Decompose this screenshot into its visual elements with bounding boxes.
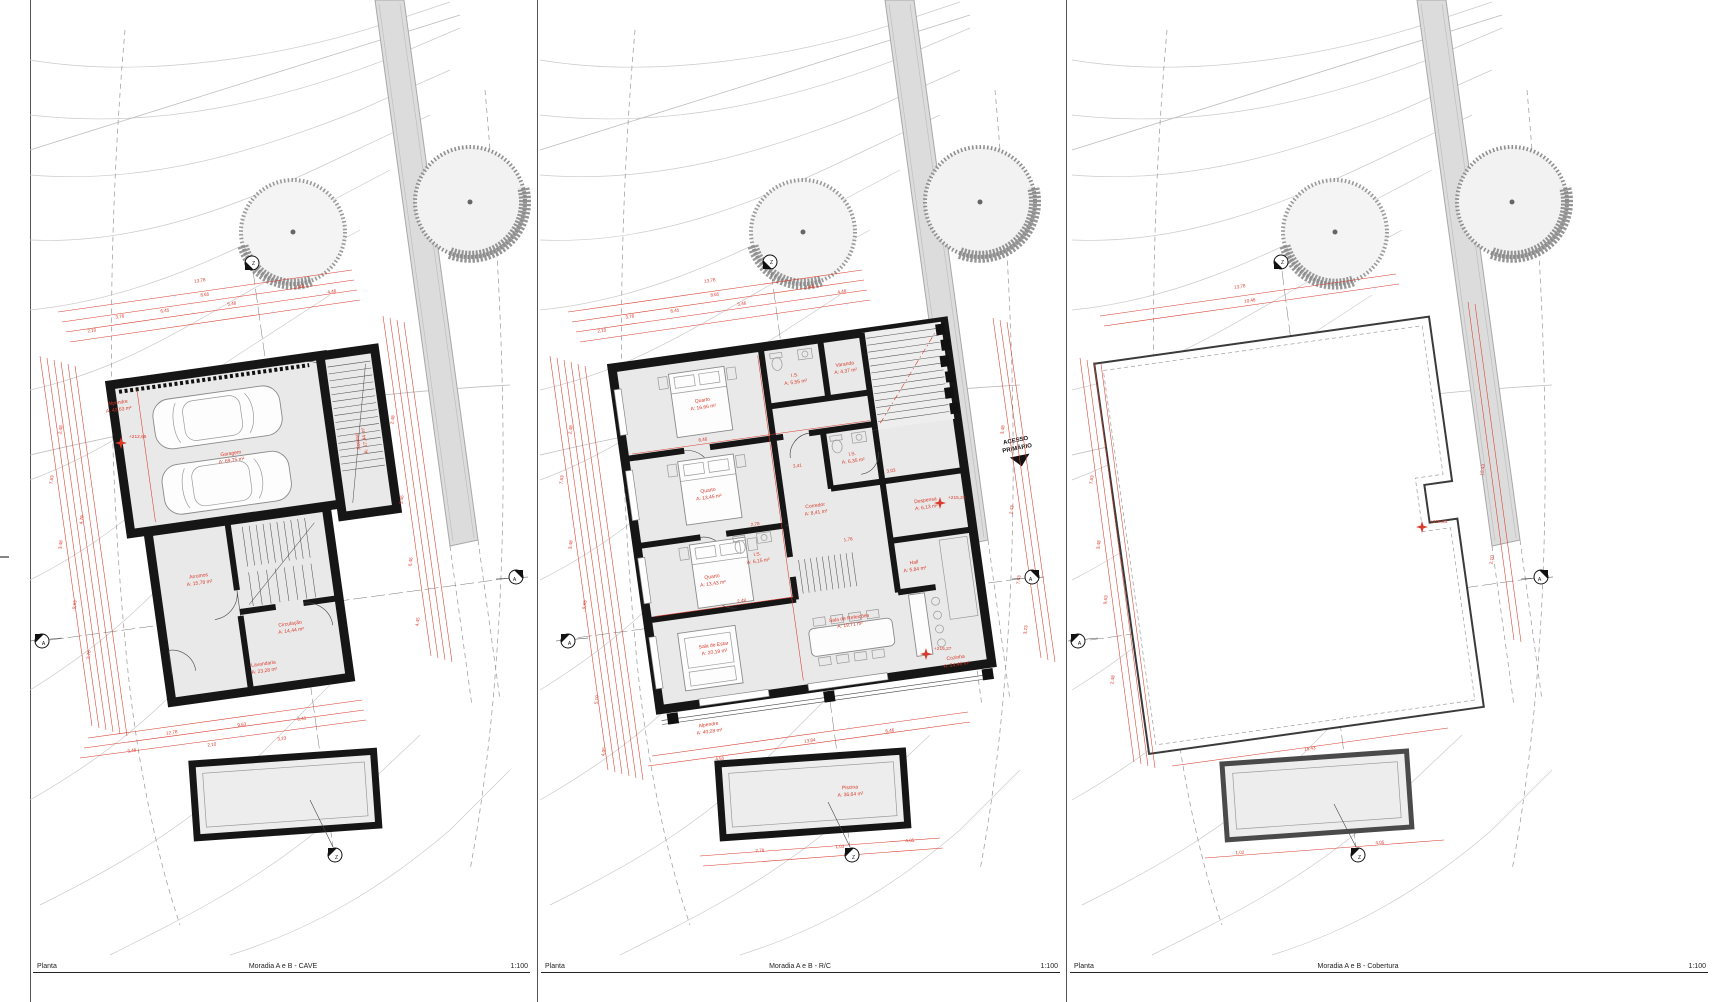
svg-text:8,65: 8,65	[200, 291, 210, 297]
svg-text:2,78: 2,78	[755, 848, 765, 854]
section-marker: Z	[1351, 848, 1365, 862]
panel-rc: Quarto A: 16,66 m² I.S. A: 5,55 m² Varan…	[541, 255, 1060, 973]
svg-text:I.S.: I.S.	[753, 551, 761, 558]
svg-text:7,63: 7,63	[1088, 475, 1094, 485]
svg-text:Z: Z	[852, 855, 855, 861]
svg-text:9,63: 9,63	[1102, 595, 1108, 605]
svg-text:3,23: 3,23	[277, 735, 287, 741]
svg-text:4,05: 4,05	[1375, 840, 1385, 846]
svg-text:3,76: 3,76	[625, 313, 635, 319]
svg-text:2,10: 2,10	[87, 327, 97, 333]
roof-outline	[1094, 317, 1484, 754]
dimension-lines-top: 13,78 8,65 3,76 6,45 2,10 5,46 1,46 4,48	[58, 270, 360, 342]
svg-text:+215,20: +215,20	[948, 495, 966, 501]
svg-text:9,63: 9,63	[581, 600, 587, 610]
svg-text:+218,23: +218,23	[1430, 519, 1448, 525]
svg-text:2,10: 2,10	[597, 327, 607, 333]
svg-text:2,10: 2,10	[207, 741, 217, 747]
svg-text:6,45: 6,45	[670, 307, 680, 313]
pool	[1222, 751, 1412, 840]
svg-text:2,48: 2,48	[1109, 675, 1115, 685]
svg-text:13,78: 13,78	[1234, 283, 1247, 290]
svg-text:Planta: Planta	[37, 963, 57, 970]
rc-floor-block: Quarto A: 16,66 m² I.S. A: 5,55 m² Varan…	[611, 321, 999, 742]
pool: Piscina A: 36,64 m²	[718, 751, 908, 838]
svg-text:5,46: 5,46	[227, 300, 237, 306]
svg-text:Z: Z	[335, 855, 338, 861]
title-bar: Planta Moradia A e B - R/C 1:100	[541, 963, 1060, 973]
panel-cave: Garagem A: 69,75 m² Acesso A: 17,44 m²	[30, 256, 530, 973]
svg-text:Z: Z	[1358, 855, 1361, 861]
svg-text:6,45: 6,45	[160, 307, 170, 313]
svg-text:Moradia A e B - Cobertura: Moradia A e B - Cobertura	[1318, 963, 1399, 970]
svg-text:+212,65: +212,65	[129, 434, 147, 440]
svg-text:12,78: 12,78	[166, 729, 179, 736]
section-marker: Z	[845, 848, 859, 862]
svg-text:4,48: 4,48	[327, 288, 337, 294]
svg-text:15,43: 15,43	[1304, 745, 1317, 752]
architectural-sheet: Garagem A: 69,75 m² Acesso A: 17,44 m²	[0, 0, 1714, 1002]
svg-text:2,48: 2,48	[389, 415, 395, 425]
dimension-lines-right: 3,48 2,43 7,63 3,23	[993, 318, 1055, 662]
svg-text:3,48: 3,48	[127, 747, 137, 753]
room-label-alpendre: Alpendre A: 40,28 m²	[695, 720, 723, 737]
svg-text:Hall: Hall	[909, 559, 918, 566]
title-bar: Planta Moradia A e B - Cobertura 1:100	[1070, 963, 1708, 973]
svg-text:7,63: 7,63	[558, 475, 564, 485]
svg-text:Z: Z	[252, 261, 255, 267]
svg-text:4,45: 4,45	[414, 617, 420, 627]
acesso-primario-annotation: ACESSO PRIMÁRIO	[1001, 435, 1036, 469]
svg-text:5,46: 5,46	[398, 495, 404, 505]
section-marker: A	[556, 634, 588, 648]
svg-text:6,46: 6,46	[407, 557, 413, 567]
section-marker: Z	[328, 848, 342, 862]
svg-text:10,46: 10,46	[1244, 297, 1257, 304]
svg-text:9,63: 9,63	[237, 721, 247, 727]
svg-text:2,10: 2,10	[1488, 555, 1494, 565]
title-bar: Planta Moradia A e B - CAVE 1:100	[33, 963, 530, 973]
svg-text:4,48: 4,48	[837, 288, 847, 294]
svg-text:1:100: 1:100	[1688, 963, 1706, 970]
section-marker: Z	[763, 255, 777, 269]
svg-text:2,48: 2,48	[57, 425, 63, 435]
svg-text:2,48: 2,48	[567, 425, 573, 435]
svg-text:7,63: 7,63	[48, 475, 54, 485]
svg-text:+215,27: +215,27	[934, 646, 952, 652]
sofa-icon	[678, 625, 744, 691]
svg-text:2,76: 2,76	[85, 650, 91, 660]
svg-text:I.S.: I.S.	[848, 451, 856, 458]
svg-text:3,48: 3,48	[999, 425, 1005, 435]
svg-text:Z: Z	[1281, 260, 1284, 266]
dimension-lines-top: 13,78 10,46	[1100, 274, 1399, 326]
section-marker: A	[1068, 634, 1098, 648]
svg-text:9,63: 9,63	[71, 600, 77, 610]
svg-text:4,05: 4,05	[905, 838, 915, 844]
svg-text:2,43: 2,43	[1008, 505, 1014, 515]
svg-text:Planta: Planta	[545, 963, 565, 970]
panel-cobertura: +218,23 13,78 10,46 7,63 9,63 3,48 2,48	[1068, 255, 1708, 973]
svg-text:3,48: 3,48	[567, 540, 573, 550]
section-marker: A	[1521, 570, 1553, 584]
svg-text:3,48: 3,48	[57, 540, 63, 550]
cave-lower-block: Arrumos A: 15,78 m² Circulação A: 14,44 …	[148, 507, 350, 702]
svg-text:1,02: 1,02	[1235, 850, 1245, 856]
svg-text:3,23: 3,23	[1022, 625, 1028, 635]
svg-text:3,76: 3,76	[115, 313, 125, 319]
section-marker: Z	[245, 256, 259, 270]
svg-text:Moradia A e B - R/C: Moradia A e B - R/C	[769, 963, 831, 970]
svg-text:Z: Z	[770, 260, 773, 266]
svg-text:5,46: 5,46	[737, 300, 747, 306]
section-marker: A	[30, 634, 62, 648]
svg-text:1:100: 1:100	[1040, 963, 1058, 970]
svg-text:I.S.: I.S.	[791, 372, 799, 379]
svg-text:13,84: 13,84	[804, 737, 817, 744]
svg-text:8,65: 8,65	[710, 291, 720, 297]
svg-text:13,78: 13,78	[194, 277, 207, 284]
pool	[192, 751, 379, 838]
svg-text:13,78: 13,78	[704, 277, 717, 284]
svg-text:Piscina: Piscina	[842, 784, 859, 791]
svg-text:3,48: 3,48	[1095, 540, 1101, 550]
section-marker: Z	[1274, 255, 1288, 269]
svg-text:7,63: 7,63	[1015, 575, 1021, 585]
svg-text:Moradia A e B - CAVE: Moradia A e B - CAVE	[249, 963, 318, 970]
dimension-lines-top: 13,78 8,65 3,76 6,45 2,10 5,46 1,46 4,48	[568, 270, 870, 342]
svg-text:1,03: 1,03	[835, 844, 845, 850]
svg-text:6,45: 6,45	[297, 715, 307, 721]
svg-text:1:100: 1:100	[510, 963, 528, 970]
svg-text:Planta: Planta	[1074, 963, 1094, 970]
